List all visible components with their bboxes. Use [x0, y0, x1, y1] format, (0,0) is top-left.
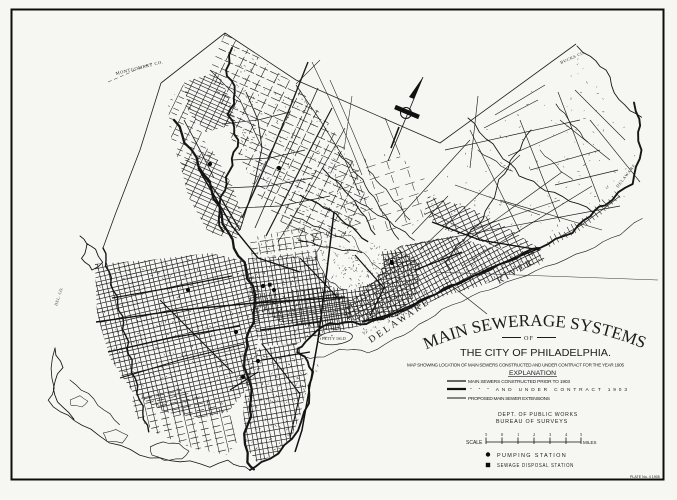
- svg-text:1: 1: [517, 432, 519, 437]
- svg-text:MAIN SEWERS CONSTRUCTED PRIOR: MAIN SEWERS CONSTRUCTED PRIOR TO 1903: [468, 379, 570, 385]
- svg-text:PROPOSED MAIN SEWER EXTENSIONS: PROPOSED MAIN SEWER EXTENSIONS: [468, 396, 550, 402]
- svg-text:PLATE No. 4 1905: PLATE No. 4 1905: [630, 475, 660, 479]
- svg-text:2: 2: [533, 432, 535, 437]
- svg-text:PUMPING STATION: PUMPING STATION: [497, 453, 567, 459]
- svg-text:BUREAU OF SURVEYS: BUREAU OF SURVEYS: [496, 419, 568, 425]
- svg-text:THE CITY OF PHILADELPHIA.: THE CITY OF PHILADELPHIA.: [460, 348, 611, 359]
- svg-text:OF: OF: [524, 335, 534, 342]
- svg-text:MILES: MILES: [583, 440, 597, 445]
- svg-text:SEWAGE DISPOSAL STATION: SEWAGE DISPOSAL STATION: [497, 463, 574, 469]
- svg-text:MAP SHOWING LOCATION OF MAIN S: MAP SHOWING LOCATION OF MAIN SEWERS CONS…: [407, 363, 624, 368]
- svg-text:PETTY ISLD: PETTY ISLD: [322, 337, 346, 341]
- svg-text:SCALE: SCALE: [466, 440, 483, 446]
- svg-text:DEPT. OF PUBLIC WORKS: DEPT. OF PUBLIC WORKS: [498, 412, 578, 418]
